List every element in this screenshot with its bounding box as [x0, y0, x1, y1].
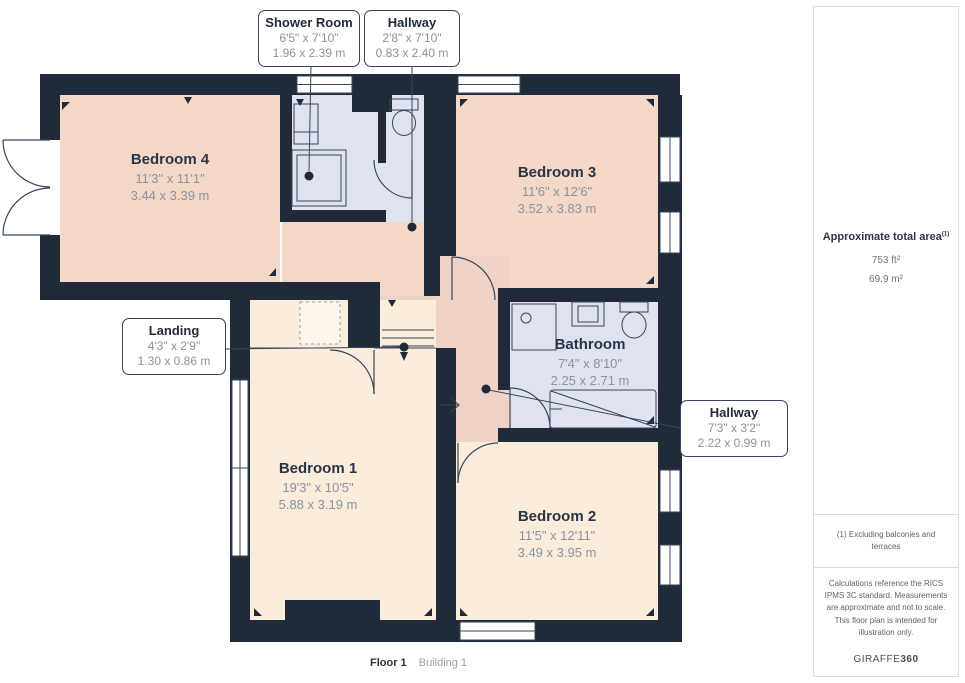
storage-dashed-icon [300, 302, 340, 344]
footnote-section: (1) Excluding balconies and terraces [814, 514, 958, 567]
disclaimer-section: Calculations reference the RICS IPMS 3C … [814, 567, 958, 676]
room-name: Bedroom 2 [518, 508, 597, 525]
wall-bottom [230, 620, 682, 642]
callout-dim-metric: 2.22 x 0.99 m [687, 436, 781, 451]
room-name: Bedroom 4 [131, 151, 210, 168]
wall-shower-left [280, 95, 292, 210]
room-label-bedroom3: Bedroom 3 11'6" x 12'6" 3.52 x 3.83 m [518, 164, 597, 218]
wall-bathroom-left [498, 302, 510, 390]
floor-label: Floor 1 [370, 657, 407, 669]
plan-footer: Floor 1 Building 1 [370, 657, 467, 669]
room-label-bedroom4: Bedroom 4 11'3" x 11'1" 3.44 x 3.39 m [131, 151, 210, 205]
callout-dim-imperial: 7'3" x 3'2" [687, 421, 781, 436]
room-label-bedroom1: Bedroom 1 19'3" x 10'5" 5.88 x 3.19 m [279, 460, 358, 514]
callout-shower-room: Shower Room 6'5" x 7'10" 1.96 x 2.39 m [258, 10, 360, 67]
floorplan-page: Bedroom 4 11'3" x 11'1" 3.44 x 3.39 m Be… [0, 0, 965, 683]
callout-hallway-top: Hallway 2'8" x 7'10" 0.83 x 2.40 m [364, 10, 460, 67]
brand-name: GIRAFFE [853, 654, 900, 665]
wall-shower-bottom [280, 210, 386, 222]
wall-hall-right-lower [424, 232, 440, 296]
wall-bathroom-bottom [498, 428, 658, 442]
brand-suffix: 360 [900, 654, 918, 665]
disclaimer-text: Calculations reference the RICS IPMS 3C … [823, 578, 949, 640]
wall-landing-block [348, 282, 380, 348]
building-label: Building 1 [419, 657, 467, 669]
wall-chimney [285, 600, 380, 622]
room-name: Bathroom [551, 336, 630, 353]
room-name: Bedroom 3 [518, 164, 597, 181]
room-label-bathroom: Bathroom 7'4" x 8'10" 2.25 x 2.71 m [551, 336, 630, 390]
total-area-values: 753 ft² 69.9 m² [869, 251, 903, 289]
wall-bedroom4-bottom [40, 282, 348, 300]
total-area-section: Approximate total area(1) 753 ft² 69.9 m… [814, 7, 958, 514]
room-dim-imperial: 11'3" x 11'1" [131, 171, 210, 188]
wall-bedroom1-right [436, 348, 456, 620]
room-dim-metric: 3.44 x 3.39 m [131, 188, 210, 205]
callout-name: Shower Room [265, 15, 353, 30]
callout-name: Landing [129, 323, 219, 338]
room-label-bedroom2: Bedroom 2 11'5" x 12'11" 3.49 x 3.95 m [518, 508, 597, 562]
room-dim-metric: 3.52 x 3.83 m [518, 201, 597, 218]
wall-top-notch [352, 74, 392, 112]
callout-dim-metric: 1.30 x 0.86 m [129, 354, 219, 369]
hallway-top-floor [386, 210, 424, 222]
room-dim-imperial: 11'6" x 12'6" [518, 184, 597, 201]
wall-bedroom3-left [440, 232, 456, 256]
brand-logo: GIRAFFE360 [823, 652, 949, 668]
room-dim-metric: 3.49 x 3.95 m [518, 545, 597, 562]
room-dim-imperial: 7'4" x 8'10" [551, 356, 630, 373]
callout-dim-imperial: 2'8" x 7'10" [371, 31, 453, 46]
callout-landing: Landing 4'3" x 2'9" 1.30 x 0.86 m [122, 318, 226, 375]
area-metric: 69.9 m² [869, 270, 903, 289]
footnote-ref: (1) [942, 232, 949, 238]
callout-name: Hallway [687, 405, 781, 420]
callout-dim-metric: 0.83 x 2.40 m [371, 46, 453, 61]
shower-room-floor [292, 95, 424, 210]
callout-dim-metric: 1.96 x 2.39 m [265, 46, 353, 61]
callout-hallway-right: Hallway 7'3" x 3'2" 2.22 x 0.99 m [680, 400, 788, 457]
callout-dim-imperial: 6'5" x 7'10" [265, 31, 353, 46]
wall-hall-right [424, 74, 456, 232]
room-dim-metric: 5.88 x 3.19 m [279, 497, 358, 514]
area-imperial: 753 ft² [869, 251, 903, 270]
wall-bedroom3-bottom [498, 288, 658, 302]
info-sidebar: Approximate total area(1) 753 ft² 69.9 m… [813, 6, 959, 677]
total-area-label: Approximate total area(1) [823, 231, 950, 243]
callout-dim-imperial: 4'3" x 2'9" [129, 339, 219, 354]
room-dim-metric: 2.25 x 2.71 m [551, 373, 630, 390]
callout-name: Hallway [371, 15, 453, 30]
room-dim-imperial: 11'5" x 12'11" [518, 528, 597, 545]
room-dim-imperial: 19'3" x 10'5" [279, 480, 358, 497]
room-name: Bedroom 1 [279, 460, 358, 477]
